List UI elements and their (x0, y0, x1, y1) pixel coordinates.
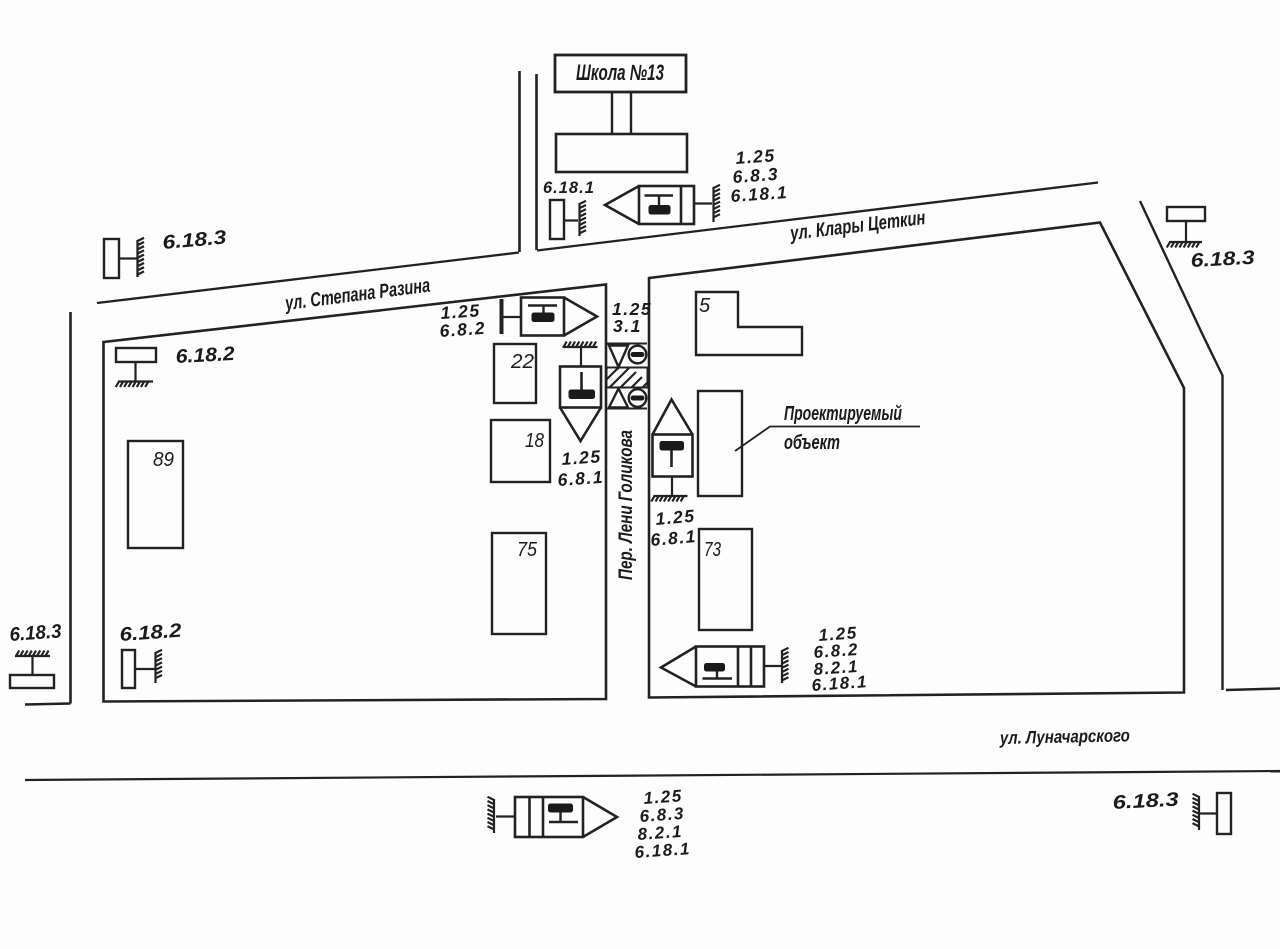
svg-text:6.18.3: 6.18.3 (9, 620, 63, 646)
svg-text:6.18.3: 6.18.3 (1112, 789, 1179, 814)
svg-text:75: 75 (517, 539, 538, 561)
svg-text:объект: объект (784, 432, 840, 454)
svg-text:6.18.1: 6.18.1 (634, 839, 691, 862)
svg-text:6.8.1: 6.8.1 (557, 467, 605, 490)
svg-text:6.18.1: 6.18.1 (543, 179, 595, 197)
svg-text:73: 73 (704, 539, 721, 561)
svg-text:6.8.1: 6.8.1 (650, 526, 698, 550)
svg-text:89: 89 (153, 449, 174, 471)
svg-text:6.18.3: 6.18.3 (162, 226, 228, 254)
svg-text:ул. Степана Разина: ул. Степана Разина (283, 275, 431, 315)
svg-text:Пер. Лени Голикова: Пер. Лени Голикова (616, 430, 637, 580)
svg-text:18: 18 (525, 430, 544, 452)
svg-text:6.8.2: 6.8.2 (439, 318, 487, 341)
svg-text:6.18.1: 6.18.1 (811, 672, 868, 695)
svg-text:6.18.1: 6.18.1 (730, 182, 789, 206)
svg-text:6.18.3: 6.18.3 (1190, 247, 1255, 272)
svg-text:6.18.2: 6.18.2 (175, 343, 235, 368)
svg-text:Проектируемый: Проектируемый (784, 403, 902, 425)
svg-text:1.25: 1.25 (655, 506, 697, 529)
svg-text:ул. Луначарского: ул. Луначарского (999, 725, 1130, 748)
svg-text:Школа №13: Школа №13 (576, 60, 664, 85)
svg-text:6.18.2: 6.18.2 (119, 620, 183, 646)
svg-text:1.25: 1.25 (561, 446, 602, 469)
svg-text:5: 5 (699, 295, 711, 317)
svg-text:3.1: 3.1 (613, 316, 642, 336)
svg-text:22: 22 (510, 351, 534, 373)
